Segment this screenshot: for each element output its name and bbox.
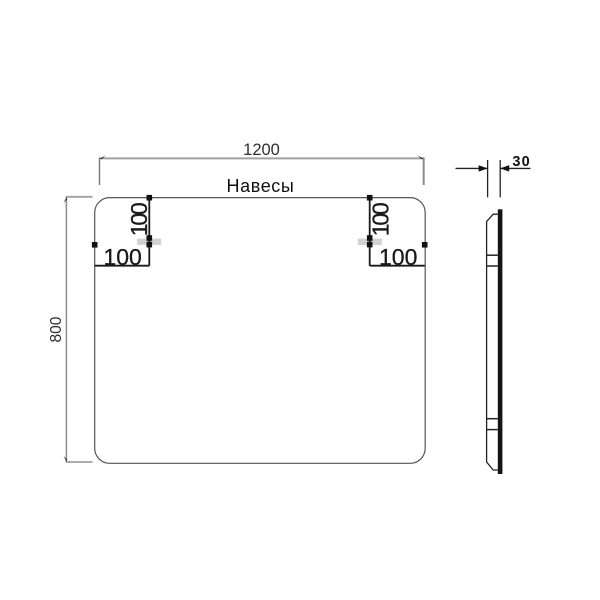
- svg-text:100: 100: [379, 244, 417, 270]
- svg-text:Навесы: Навесы: [227, 176, 295, 196]
- svg-text:100: 100: [126, 203, 152, 236]
- svg-text:100: 100: [103, 244, 141, 270]
- svg-text:100: 100: [368, 203, 394, 236]
- svg-text:30: 30: [512, 154, 531, 170]
- svg-text:1200: 1200: [243, 141, 280, 159]
- svg-text:800: 800: [48, 316, 65, 342]
